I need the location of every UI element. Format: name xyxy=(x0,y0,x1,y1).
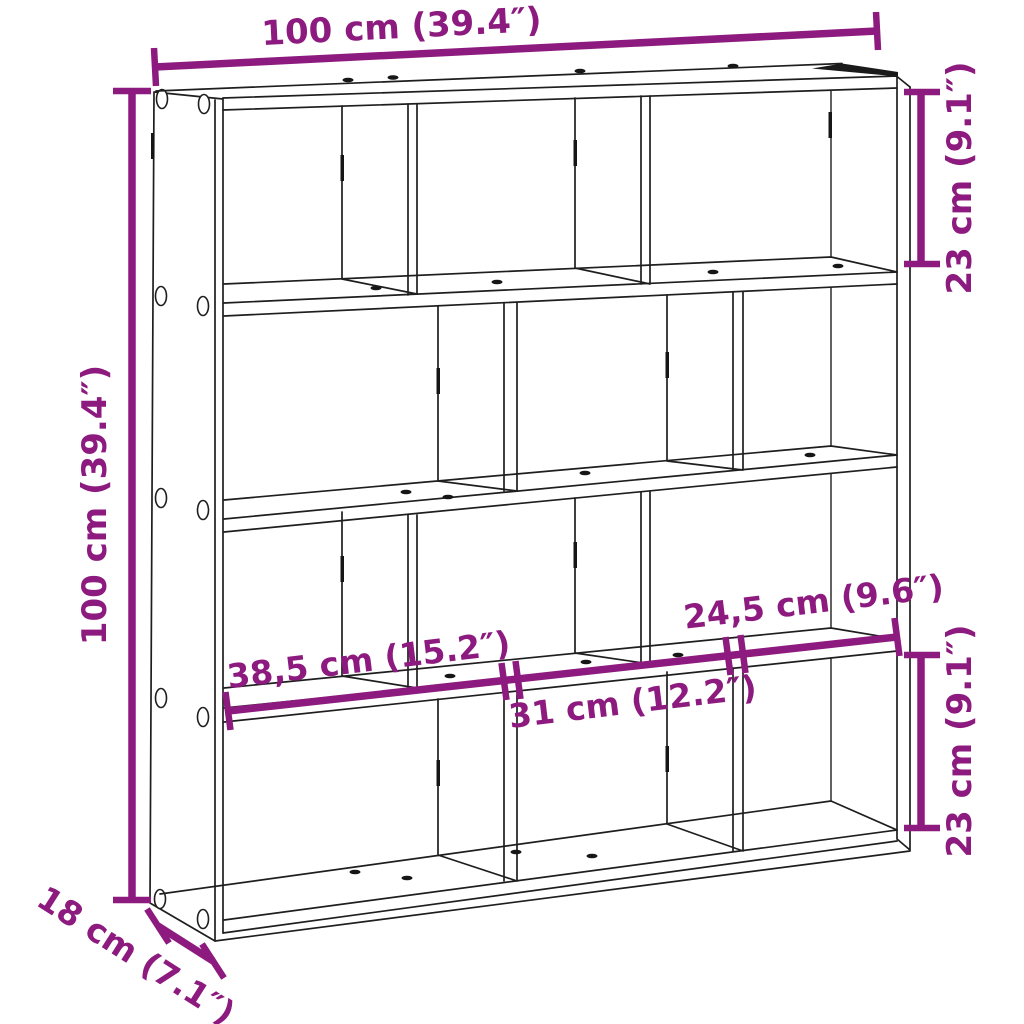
divider-row4-left xyxy=(438,692,517,881)
divider-row2-right xyxy=(667,292,743,470)
top-board-lines xyxy=(156,64,910,111)
bottom-compartment-label: 23 cm (9.1″) xyxy=(940,624,980,857)
mounting-holes xyxy=(155,90,210,929)
diagram-canvas: 100 cm (39.4″) 100 cm (39.4″) 23 cm (9.1… xyxy=(0,0,1024,1024)
fitting-marks xyxy=(151,64,844,881)
top-board xyxy=(156,64,910,111)
bottom-board xyxy=(160,801,910,941)
shelf-1 xyxy=(224,257,897,316)
divider-row1-left xyxy=(342,104,417,295)
left-panel-outline xyxy=(150,92,223,941)
width-dimension: 100 cm (39.4″) xyxy=(154,0,878,86)
height-dimension-label: 100 cm (39.4″) xyxy=(75,365,115,645)
height-dimension: 100 cm (39.4″) xyxy=(75,91,151,900)
shelf-2 xyxy=(224,446,897,532)
dimension-diagram: 100 cm (39.4″) 100 cm (39.4″) 23 cm (9.1… xyxy=(0,0,1024,1024)
shelf-drawing xyxy=(150,64,910,942)
left-side-panel xyxy=(150,90,223,942)
top-edge-shadow xyxy=(812,64,898,77)
top-compartment-height-dimension: 23 cm (9.1″) xyxy=(904,61,980,294)
right-side-panel xyxy=(831,76,910,850)
divider-row3-right xyxy=(575,492,650,665)
top-compartment-label: 23 cm (9.1″) xyxy=(940,61,980,294)
dimension-annotations: 100 cm (39.4″) 100 cm (39.4″) 23 cm (9.1… xyxy=(30,0,980,1024)
divider-row2-left xyxy=(438,303,517,491)
width-dimension-label: 100 cm (39.4″) xyxy=(260,0,542,54)
compartment-width-label-3: 24,5 cm (9.6″) xyxy=(681,567,946,637)
right-panel-outline xyxy=(897,76,910,850)
divider-row1-right xyxy=(575,96,650,284)
bottom-compartment-height-dimension: 23 cm (9.1″) xyxy=(904,624,980,857)
